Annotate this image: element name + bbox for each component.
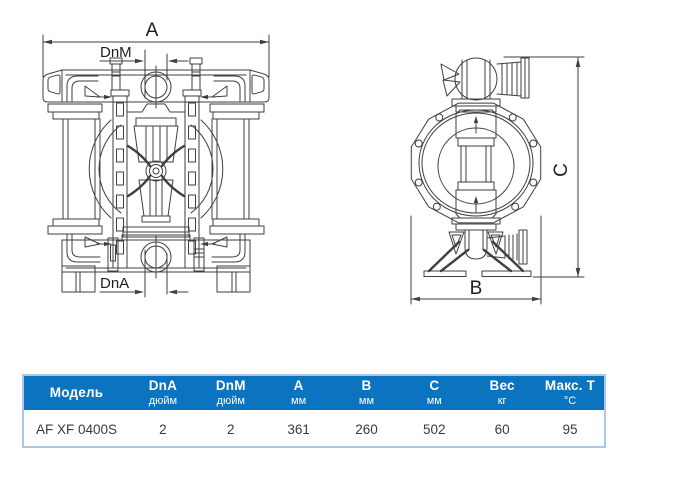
bottom-fitting-stand — [424, 218, 531, 277]
top-fitting — [441, 58, 529, 112]
header-cell-b: B мм — [333, 376, 401, 410]
col-unit: мм — [291, 395, 306, 408]
spec-table-header: Модель DnA дюйм DnM дюйм A мм B мм C мм — [24, 376, 604, 412]
col-unit: дюйм — [217, 395, 245, 408]
pump-technical-drawing: A DnM DnA — [0, 0, 673, 360]
cell-dnm: 2 — [197, 412, 265, 446]
col-label: DnA — [149, 378, 177, 394]
cell-c: 502 — [400, 412, 468, 446]
cell-weight: 60 — [468, 412, 536, 446]
dimension-c-label: C — [551, 163, 572, 177]
dimension-dnm-label: DnM — [100, 44, 132, 61]
col-label: Модель — [50, 385, 103, 401]
col-unit: кг — [498, 395, 507, 408]
air-motor — [128, 118, 184, 222]
col-label: Макс. T — [545, 378, 595, 394]
cell-dna: 2 — [129, 412, 197, 446]
spec-table: Модель DnA дюйм DnM дюйм A мм B мм C мм — [22, 374, 606, 448]
col-label: A — [294, 378, 304, 394]
dimension-dna-label: DnA — [100, 275, 129, 292]
dimension-c — [504, 57, 584, 277]
front-view: A DnM DnA — [43, 20, 269, 297]
col-unit: дюйм — [149, 395, 177, 408]
header-cell-model: Модель — [24, 376, 129, 410]
col-unit: мм — [427, 395, 442, 408]
col-unit: мм — [359, 395, 374, 408]
dimension-a-label: A — [146, 20, 159, 41]
header-cell-dna: DnA дюйм — [129, 376, 197, 410]
header-cell-weight: Вес кг — [468, 376, 536, 410]
header-cell-dnm: DnM дюйм — [197, 376, 265, 410]
side-view: B C — [411, 57, 584, 304]
cell-a: 361 — [265, 412, 333, 446]
col-label: C — [429, 378, 439, 394]
col-label: Вес — [490, 378, 515, 394]
header-cell-c: C мм — [400, 376, 468, 410]
dimension-b-label: B — [470, 278, 483, 299]
header-cell-max-t: Макс. T °C — [536, 376, 604, 410]
page: A DnM DnA — [0, 0, 673, 483]
cell-model: AF XF 0400S — [24, 412, 129, 446]
table-row: AF XF 0400S 2 2 361 260 502 60 95 — [24, 412, 604, 446]
col-label: DnM — [216, 378, 246, 394]
cell-b: 260 — [333, 412, 401, 446]
col-label: B — [361, 378, 371, 394]
header-cell-a: A мм — [265, 376, 333, 410]
col-unit: °C — [564, 395, 576, 408]
cell-max-t: 95 — [536, 412, 604, 446]
